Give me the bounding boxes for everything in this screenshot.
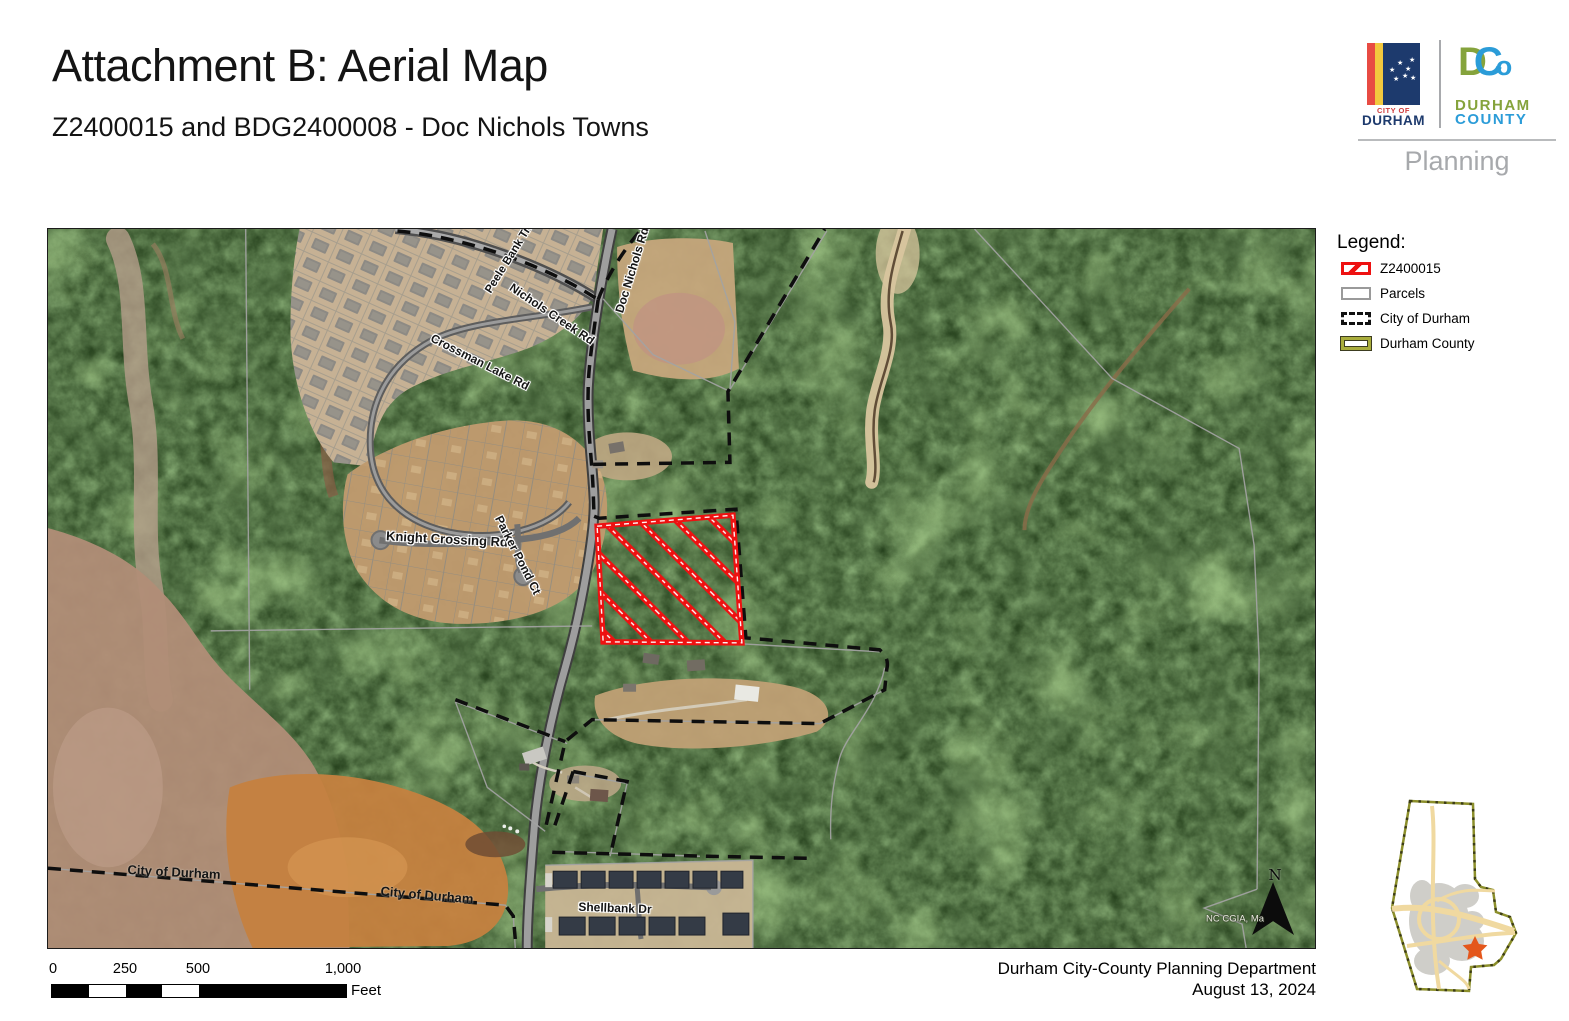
flag-star-field: ★ ★ ★ ★ ★ ★ ★ bbox=[1383, 43, 1420, 105]
page-title: Attachment B: Aerial Map bbox=[52, 40, 548, 92]
legend-item-label: Durham County bbox=[1380, 336, 1475, 351]
star-icon: ★ bbox=[1402, 73, 1408, 80]
city-durham-label: DURHAM bbox=[1357, 113, 1430, 128]
scale-segment bbox=[126, 985, 163, 997]
county-locator-map bbox=[1377, 791, 1565, 1017]
star-icon: ★ bbox=[1397, 60, 1403, 67]
scale-segment bbox=[199, 985, 346, 997]
footer-date: August 13, 2024 bbox=[916, 980, 1316, 1001]
legend-item-label: Parcels bbox=[1380, 286, 1425, 301]
star-icon: ★ bbox=[1409, 57, 1415, 64]
city-of-durham-flag-logo: ★ ★ ★ ★ ★ ★ ★ bbox=[1367, 43, 1420, 105]
durham-county-dco-logo: DCo bbox=[1458, 40, 1558, 96]
road-label-shellbank-dr: Shellbank Dr bbox=[578, 900, 652, 917]
star-icon: ★ bbox=[1393, 76, 1399, 83]
county-boundary-swatch bbox=[1341, 337, 1371, 350]
star-icon: ★ bbox=[1405, 66, 1411, 73]
parcels-swatch bbox=[1341, 287, 1371, 300]
north-label: N bbox=[1268, 866, 1281, 884]
legend-title: Legend: bbox=[1337, 232, 1557, 254]
legend-item-label: Z2400015 bbox=[1380, 261, 1441, 276]
county-county-label: COUNTY bbox=[1455, 111, 1527, 128]
scale-tick-250: 250 bbox=[113, 961, 137, 977]
footer-department: Durham City-County Planning Department bbox=[916, 959, 1316, 980]
legend-item-durham-county: Durham County bbox=[1341, 336, 1557, 351]
subject-parcel-swatch bbox=[1341, 262, 1371, 275]
star-icon: ★ bbox=[1389, 67, 1395, 74]
legend-item-z2400015: Z2400015 bbox=[1341, 261, 1557, 276]
footer: Durham City-County Planning Department A… bbox=[916, 959, 1316, 1000]
page-subtitle: Z2400015 and BDG2400008 - Doc Nichols To… bbox=[52, 112, 649, 143]
aerial-imagery bbox=[48, 229, 1315, 948]
planning-department-label: Planning bbox=[1358, 146, 1556, 177]
scale-bar: 0 250 500 1,000 Feet bbox=[47, 961, 467, 1006]
page: Attachment B: Aerial Map Z2400015 and BD… bbox=[0, 0, 1569, 1021]
scale-bar-segments bbox=[51, 984, 347, 998]
imagery-attribution: NC CGIA, Ma bbox=[1206, 914, 1264, 925]
flag-yellow-stripe bbox=[1375, 43, 1383, 105]
legend-item-label: City of Durham bbox=[1380, 311, 1470, 326]
scale-tick-0: 0 bbox=[49, 961, 57, 977]
flag-red-stripe bbox=[1367, 43, 1375, 105]
scale-segment bbox=[162, 985, 199, 997]
scale-tick-1000: 1,000 bbox=[325, 961, 361, 977]
legend-item-city-of-durham: City of Durham bbox=[1341, 311, 1557, 326]
scale-unit-label: Feet bbox=[351, 982, 381, 999]
scale-segment bbox=[52, 985, 89, 997]
scale-segment bbox=[89, 985, 126, 997]
aerial-map: Peele Bank Trl Nichols Creek Rd Doc Nich… bbox=[47, 228, 1316, 949]
logo-divider bbox=[1439, 40, 1441, 128]
logo-rule bbox=[1358, 139, 1556, 141]
star-icon: ★ bbox=[1410, 75, 1416, 82]
scale-tick-500: 500 bbox=[186, 961, 210, 977]
dco-letter-o: o bbox=[1496, 51, 1513, 81]
legend: Legend: Z2400015 Parcels City of Durham … bbox=[1337, 232, 1557, 361]
city-boundary-swatch bbox=[1341, 312, 1371, 325]
subject-parcel-z2400015 bbox=[597, 515, 742, 643]
legend-item-parcels: Parcels bbox=[1341, 286, 1557, 301]
